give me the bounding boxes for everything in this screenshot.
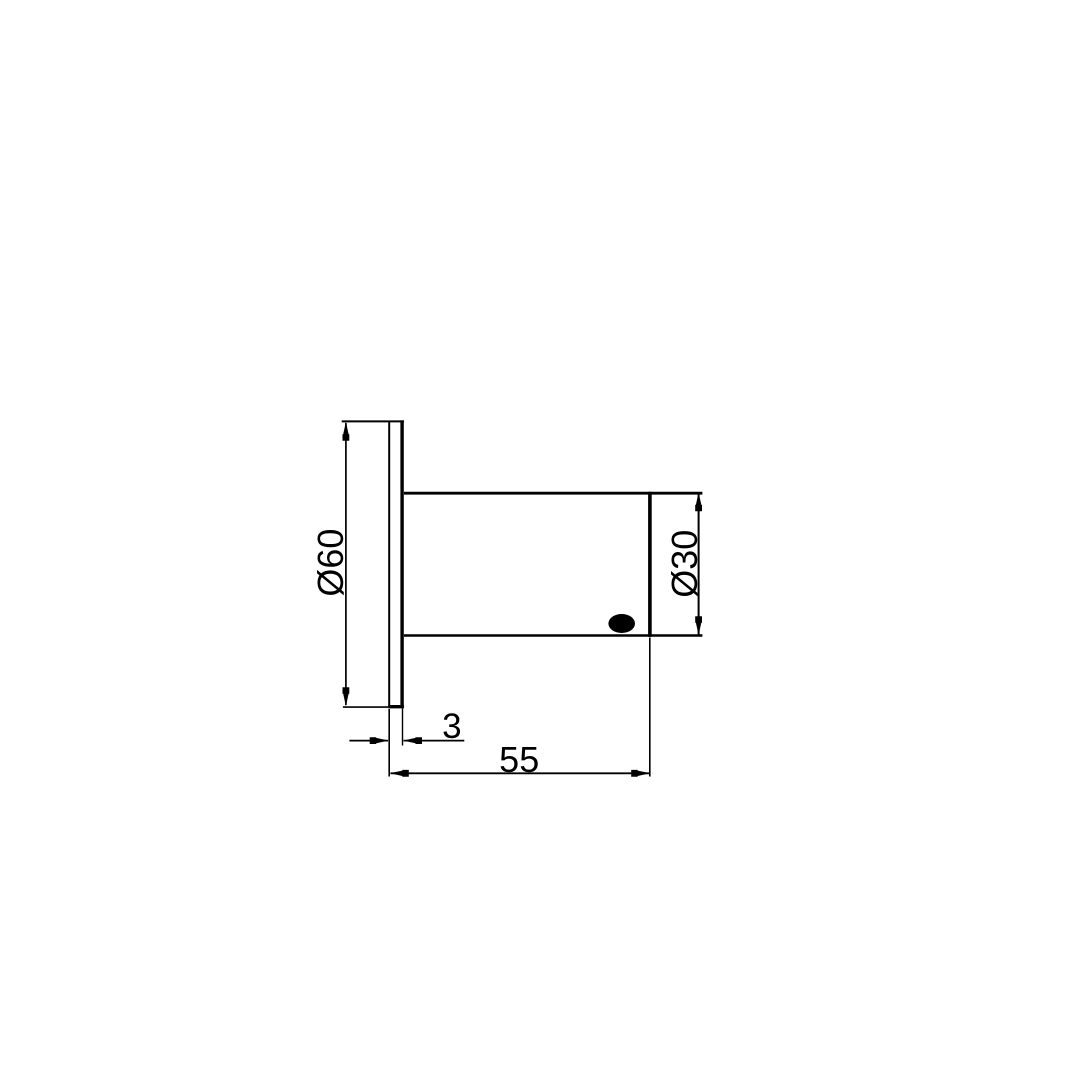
svg-text:3: 3 xyxy=(442,707,461,746)
svg-text:Ø30: Ø30 xyxy=(664,530,705,598)
svg-text:55: 55 xyxy=(499,739,539,780)
svg-text:Ø60: Ø60 xyxy=(310,529,351,597)
